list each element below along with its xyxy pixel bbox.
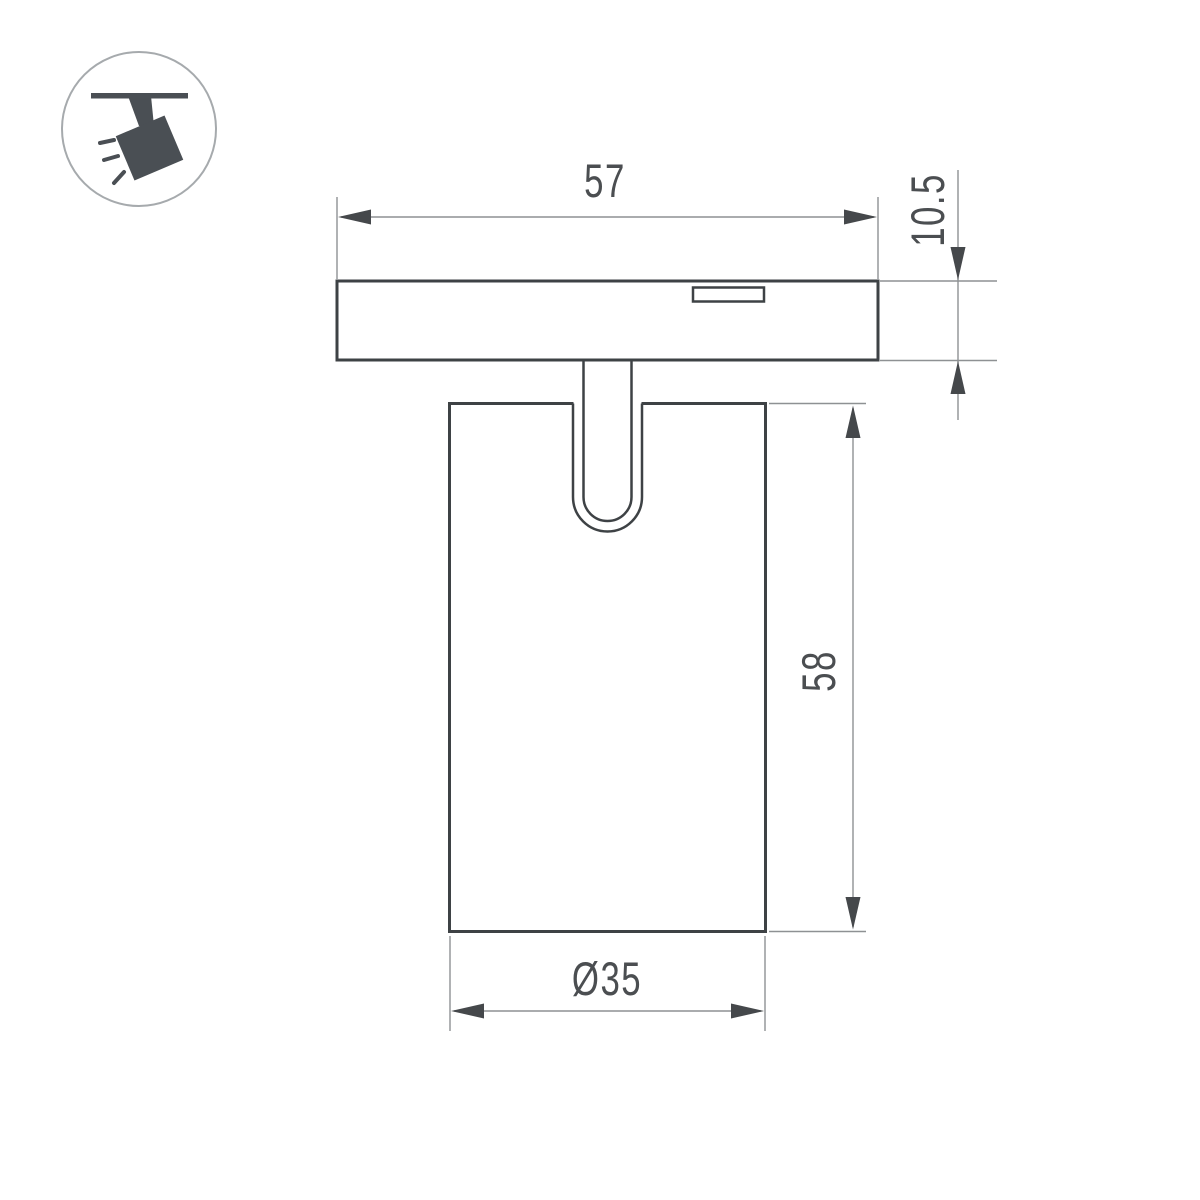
- technical-drawing-svg: 57 10.5 58 Ø35: [0, 0, 1200, 1200]
- dim-track-width: 57: [337, 155, 878, 279]
- dim-body-diameter: Ø35: [450, 936, 765, 1031]
- arrowhead-down-icon: [846, 897, 861, 930]
- product-outline: [337, 281, 878, 932]
- dim-label-base-height: 10.5: [902, 173, 954, 247]
- arrowhead-right-icon: [844, 210, 877, 225]
- arrowhead-up-icon: [951, 361, 966, 394]
- arrowhead-left-icon: [451, 1004, 484, 1019]
- arrowhead-right-icon: [731, 1004, 764, 1019]
- arrowhead-left-icon: [338, 210, 371, 225]
- page-canvas: 57 10.5 58 Ø35: [0, 0, 1200, 1200]
- dim-base-height: 10.5: [880, 170, 997, 420]
- dim-label-body-height: 58: [793, 650, 845, 692]
- arrowhead-down-icon: [951, 247, 966, 280]
- dim-body-height: 58: [769, 404, 866, 932]
- arrowhead-up-icon: [846, 406, 861, 439]
- connector-slot-outline: [693, 288, 764, 302]
- dim-label-track-width: 57: [584, 155, 626, 207]
- track-base-outline: [337, 281, 878, 360]
- lamp-body-outline: [450, 404, 766, 932]
- dim-label-body-diameter: Ø35: [572, 953, 642, 1005]
- yoke-inner-outline: [584, 361, 632, 522]
- track-spotlight-icon-badge: [62, 52, 216, 206]
